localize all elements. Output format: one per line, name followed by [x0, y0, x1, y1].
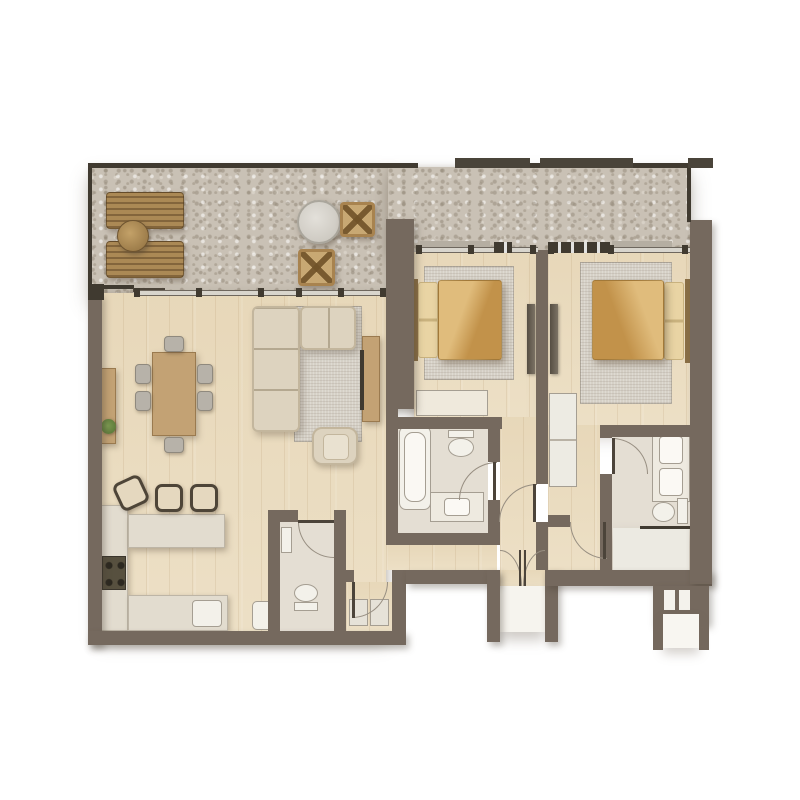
entry-door-leaf-left [519, 550, 521, 586]
exterior-wall-left [88, 293, 102, 645]
sun-lounger-1 [106, 192, 184, 229]
exterior-wall-bottom [88, 631, 406, 645]
bed1-pillows [418, 282, 438, 358]
bed2-pillows [664, 282, 684, 360]
wc-toilet-tank [294, 602, 318, 611]
bedroom1-window-wall [416, 247, 538, 253]
bedroom2-window-post-3 [682, 245, 688, 254]
bathroom1-toilet-bowl [448, 438, 474, 457]
wc-wall-top [268, 510, 298, 522]
hallway-south-wall [406, 570, 497, 584]
living-window-post-3 [258, 288, 264, 297]
bedroom1-window-post-2 [468, 245, 474, 254]
dining-table [152, 352, 196, 436]
wicker-chair-2 [298, 249, 335, 286]
bathroom2-wall-top [600, 425, 690, 437]
balcony-round-table [297, 200, 341, 244]
kitchen-peninsula [128, 514, 225, 548]
wc-wall-left [268, 510, 280, 631]
armchair [312, 427, 358, 465]
armchair-seat [323, 434, 349, 460]
tv-console [362, 336, 380, 422]
shaft-opening [663, 614, 699, 648]
bedroom1-wardrobe [527, 304, 535, 374]
bathroom1-sink [444, 498, 470, 516]
bar-stool-2 [155, 484, 183, 512]
bathroom2-door-leaf [612, 438, 615, 474]
closet-wall-stub [346, 570, 354, 582]
sectional-sofa-chaise [300, 306, 356, 350]
hallway-door-leaf [533, 484, 536, 522]
wc-hand-basin [281, 527, 292, 553]
dining-chair-left-2 [135, 391, 151, 411]
balcony-floor-right [388, 167, 690, 251]
bedroom1-dresser [416, 390, 488, 416]
bedroom2-door-wall [548, 515, 570, 527]
bathroom1-wall-left [386, 409, 398, 545]
bathroom2-toilet-tank [677, 498, 688, 524]
bar-stool-3 [190, 484, 218, 512]
entry-door-leaf-right [524, 550, 526, 586]
exterior-wall-right [690, 220, 712, 584]
bedroom2-wardrobe [550, 304, 558, 374]
bed2-duvet [592, 280, 664, 360]
balcony-pier-wall [386, 219, 414, 409]
bathroom1-toilet-tank [448, 430, 474, 438]
living-window-post-6 [380, 288, 386, 297]
bathroom1-wall-right-upper [488, 417, 500, 462]
dining-chair-top [164, 336, 184, 352]
bedroom1-window-frame [494, 242, 512, 253]
tv-screen [360, 350, 364, 410]
upper-wall-dash-3 [688, 158, 713, 168]
bathroom2-sink-2 [659, 468, 683, 496]
plant [101, 419, 116, 434]
wicker-chair-1 [340, 202, 375, 237]
bedroom2-window-frame [548, 242, 610, 253]
bathroom1-wall-bottom [386, 533, 500, 545]
shower-floor [613, 528, 689, 572]
bedroom2-door-leaf [603, 522, 606, 559]
balcony-corner-line [100, 285, 134, 289]
dining-chair-right-2 [197, 391, 213, 411]
floor-plan-page [0, 0, 800, 800]
dining-chair-right-1 [197, 364, 213, 384]
bathroom1-door-leaf [493, 462, 496, 500]
dining-chair-bottom [164, 437, 184, 453]
round-side-table [117, 220, 149, 252]
shaft-side-right [699, 620, 709, 650]
shaft-side-left [653, 620, 663, 650]
bathtub [399, 426, 431, 510]
living-window-post-1 [134, 288, 140, 297]
sectional-sofa-long [252, 306, 300, 432]
kitchen-sink [192, 600, 222, 627]
bed1-duvet [438, 280, 502, 360]
entry-mat [500, 586, 545, 632]
dining-chair-left-1 [135, 364, 151, 384]
exterior-wall-step [392, 570, 406, 645]
wc-door-leaf [298, 520, 334, 523]
balcony-wall-left [88, 163, 92, 297]
living-window-post-4 [296, 288, 302, 297]
bathtub-basin [404, 432, 426, 502]
cooktop [102, 556, 126, 590]
bathroom2-vanity [652, 430, 690, 502]
upper-wall-dash-2 [540, 158, 633, 168]
living-window-post-2 [196, 288, 202, 297]
closet-door-leaf [352, 582, 355, 618]
bathroom2-sink-1 [659, 436, 683, 464]
balcony-wall-top-a [88, 163, 418, 168]
hallway-south-floor [386, 545, 497, 570]
vestibule-wall-left [487, 570, 500, 642]
exterior-wall-bottom-right [545, 570, 712, 586]
shaft-slot-1 [664, 590, 675, 610]
living-window-post-5 [338, 288, 344, 297]
bedroom1-window-post-3 [530, 245, 536, 254]
shower-glass [640, 526, 690, 529]
upper-wall-dash-1 [455, 158, 530, 168]
bedroom2-closet [549, 393, 577, 487]
balcony-wall-right [687, 163, 691, 222]
bedroom1-south-wall [398, 417, 502, 429]
bedroom1-window-post-1 [416, 245, 422, 254]
bedroom-divider-wall-upper [536, 250, 548, 484]
wc-wall-right [334, 510, 346, 631]
wc-toilet-bowl [294, 584, 318, 602]
shaft-slot-2 [679, 590, 690, 610]
bathroom2-toilet-bowl [652, 502, 675, 522]
